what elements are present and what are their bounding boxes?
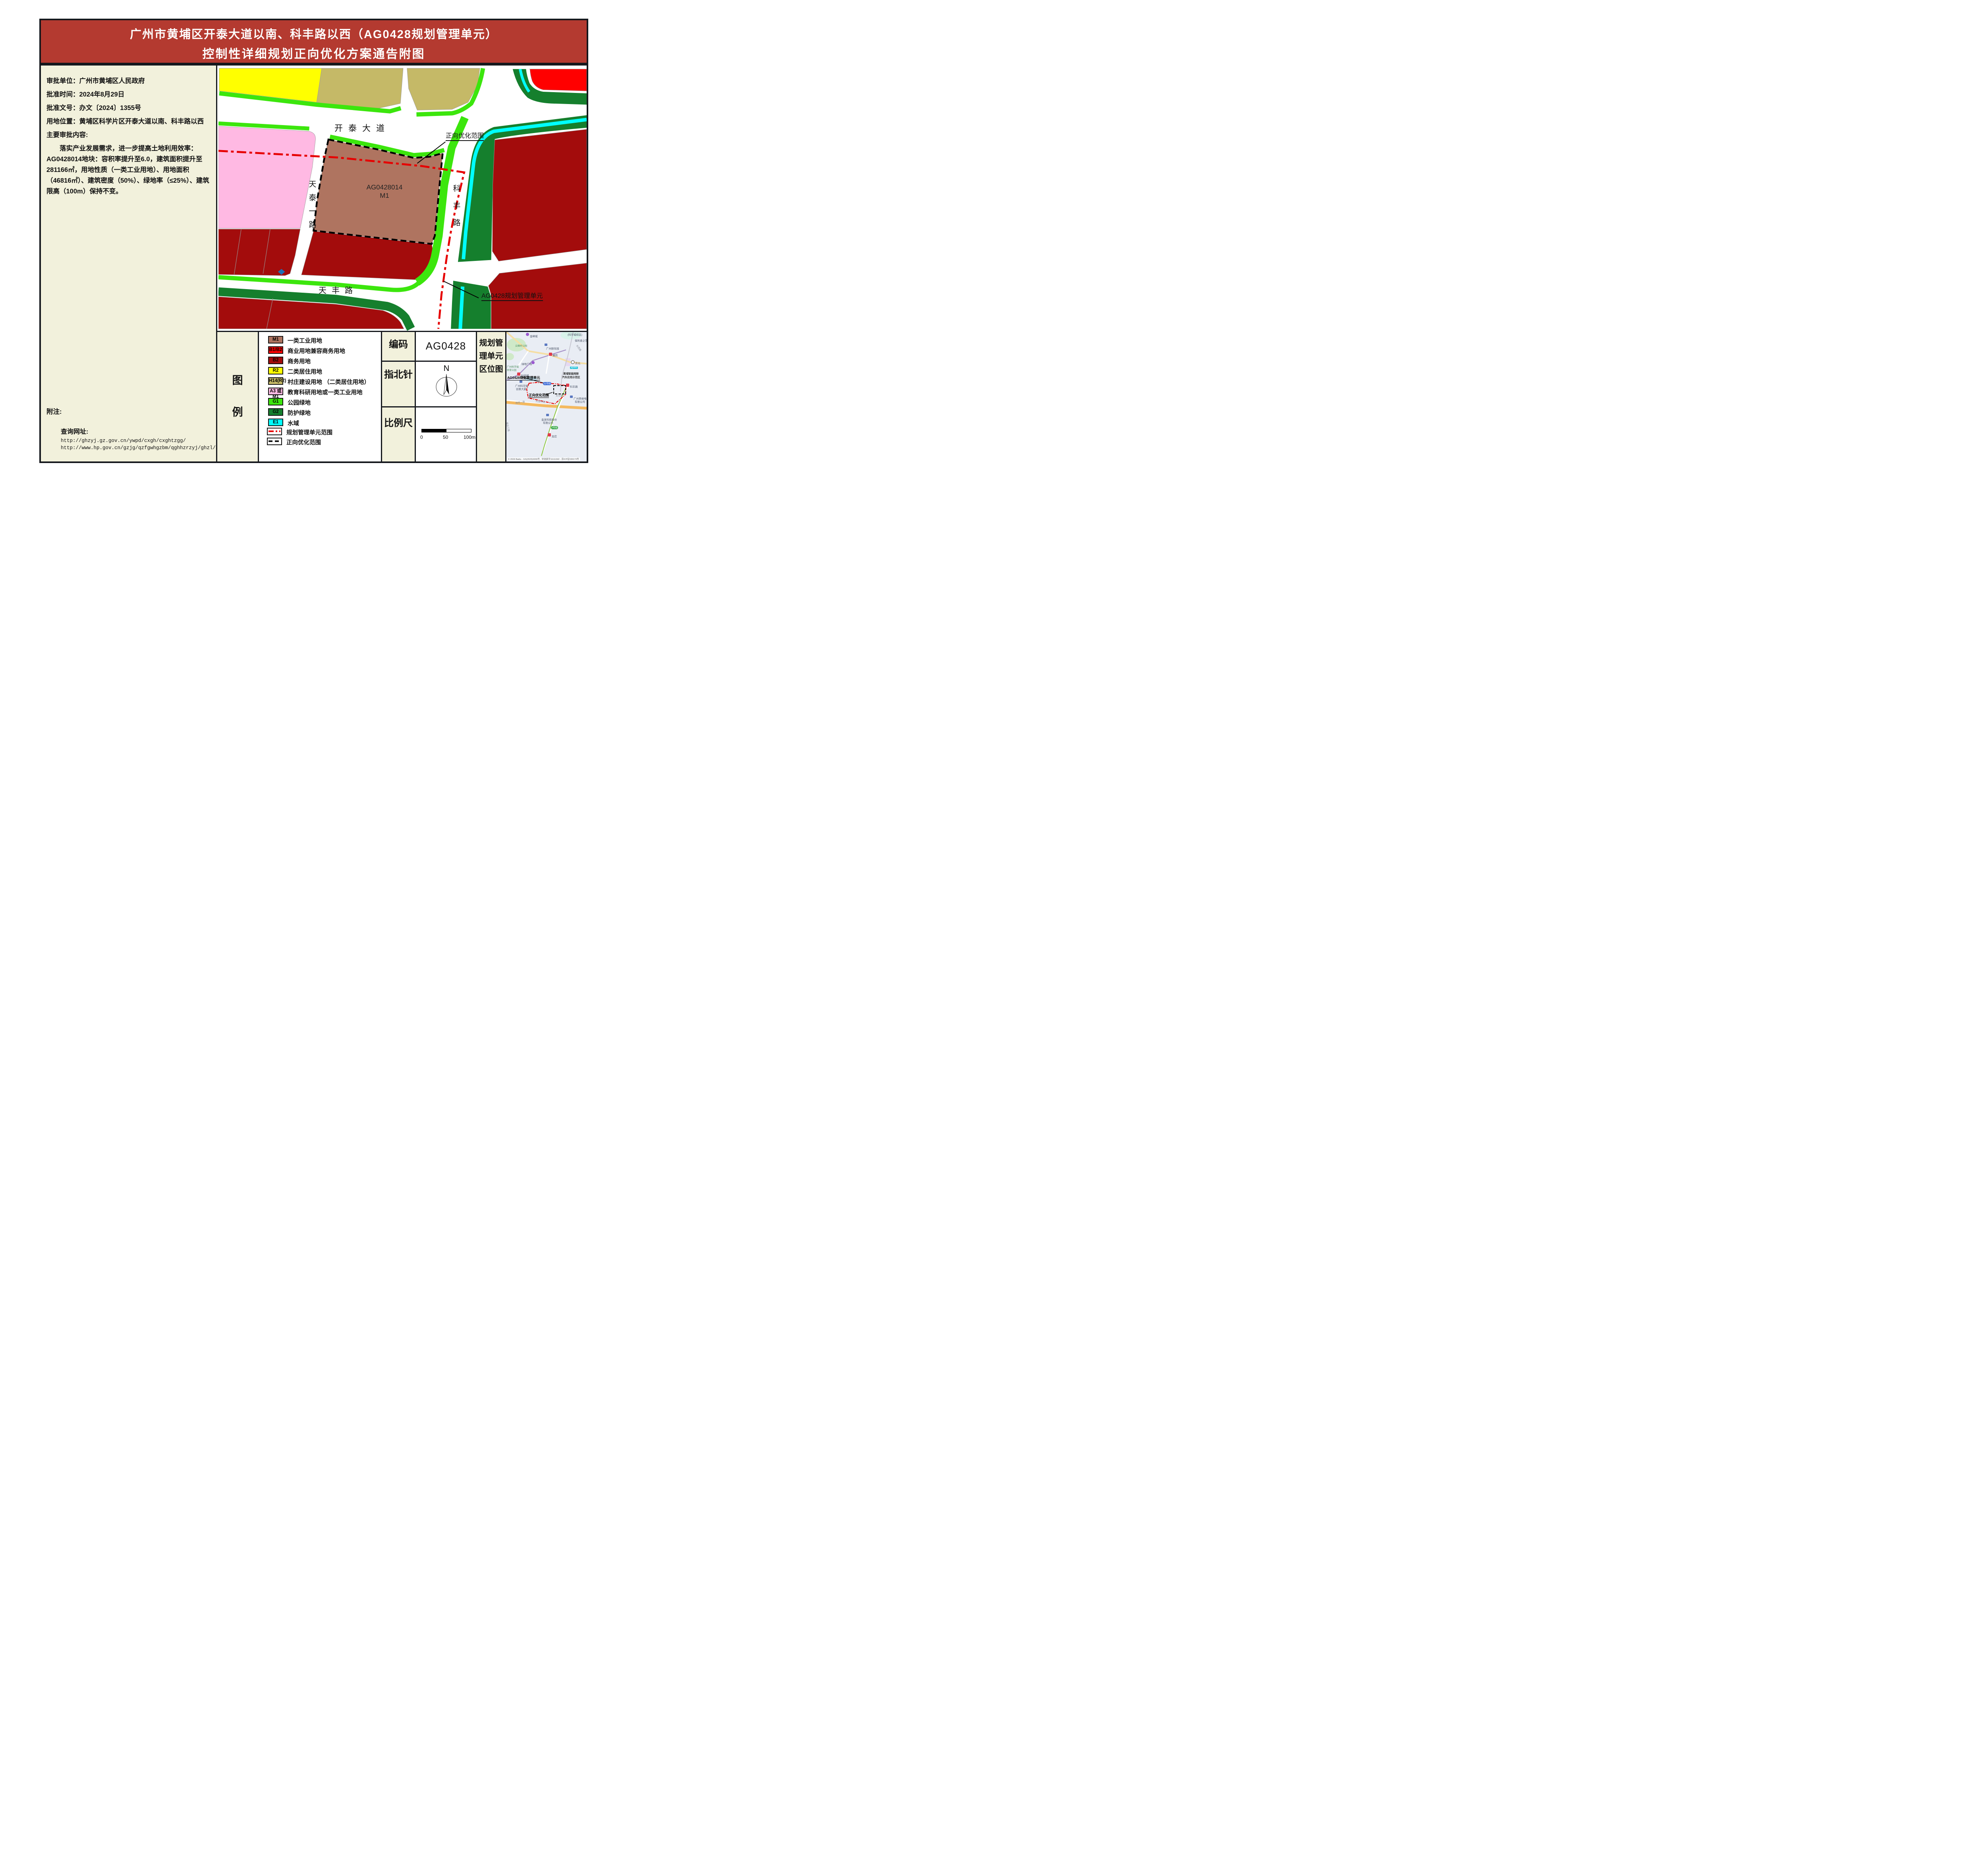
legend-lines: 规划管理单元范围 正向优化范围 <box>258 428 381 452</box>
scale-tick-50: 50 <box>443 434 448 440</box>
road-label-kefeng: 科丰路 <box>452 180 462 232</box>
minimap-label: 体育公园 <box>507 368 516 372</box>
panel-value-column: AG0428 N 0 50 100m <box>415 331 476 461</box>
legend-title-char-2: 例 <box>217 403 258 419</box>
land-location: 用地位置：黄埔区科学片区开泰大道以南、科丰路以西 <box>46 116 212 127</box>
legend-swatch: B1/B2 <box>268 346 283 354</box>
minimap-label: 科丰路 <box>570 384 578 388</box>
legend-item-label: 公园绿地 <box>288 398 311 407</box>
location-minimap: © 2024 Baidu - GS(2023)3206号 - 甲测资字11111… <box>505 331 587 461</box>
legend-item-label: 商务用地 <box>288 357 311 365</box>
approval-info-panel: 审批单位：广州市黄埔区人民政府 批准时间：2024年8月29日 批准文号：办文〔… <box>41 66 217 461</box>
code-label: 编码 <box>382 338 415 351</box>
minimap-copyright: © 2024 Baidu - GS(2023)3206号 - 甲测资字11111… <box>507 457 580 461</box>
location-map-title: 规划管理单元区位图 <box>477 337 505 376</box>
legend-title-cell: 图 例 <box>217 331 258 461</box>
legend-title-char-1: 图 <box>217 372 258 387</box>
notes-title: 附注: <box>46 406 213 416</box>
legend-item-label: 教育科研用地或一类工业用地 <box>288 388 363 396</box>
query-url-2: http://www.hp.gov.cn/gzjg/qzfgwhgzbm/qgh… <box>61 445 213 451</box>
approval-date: 批准时间：2024年8月29日 <box>46 89 212 100</box>
query-url-1: http://ghzyj.gz.gov.cn/ywpd/cxgh/cxghtzg… <box>61 438 213 444</box>
legend-swatch: M1 <box>268 336 283 344</box>
parcel-b2-northeast <box>493 129 587 261</box>
minimap-label: (科学城校区) <box>568 332 582 336</box>
scale-tick-100: 100m <box>464 434 475 440</box>
annotation-optimization-range: 正向优化范围 <box>446 130 484 141</box>
approval-content-heading: 主要审批内容: <box>46 130 212 141</box>
legend-swatch: A3 或 M1 <box>268 388 283 395</box>
legend-swatch: B2 <box>268 357 283 364</box>
road-label-kaitai-avenue: 开泰大道 <box>334 122 390 134</box>
approval-content-body: 落实产业发展需求，进一步提高土地利用效率： AG0428014地块：容积率提升至… <box>46 143 212 197</box>
compass-north-letter: N <box>444 364 449 373</box>
legend-line-label: 正向优化范围 <box>286 438 321 446</box>
e1-stripe-east-lower <box>460 287 463 329</box>
approval-info-text: 审批单位：广州市黄埔区人民政府 批准时间：2024年8月29日 批准文号：办文〔… <box>46 76 212 200</box>
minimap-label: apollo <box>570 367 578 369</box>
legend-item-label: 一类工业用地 <box>288 336 322 345</box>
minimap-label: 暹岗 <box>553 353 558 357</box>
legend-item-label: 村庄建设用地 （二类居住用地） <box>288 378 370 386</box>
minimap-label: 创意大厦 <box>516 387 526 391</box>
approval-doc-no: 批准文号：办文〔2024〕1355号 <box>46 103 212 114</box>
minimap-label: 保利香之雪 <box>575 338 587 342</box>
legend-item-label: 防护绿地 <box>288 409 311 417</box>
minimap-label: 正向优化范围 <box>529 393 549 398</box>
minimap-label: 苏元 <box>575 361 580 365</box>
drawing-frame: 广州市黄埔区开泰大道以南、科丰路以西（AG0428规划管理单元） 控制性详细规划… <box>39 19 588 463</box>
minimap-label: 金峰城 <box>530 334 538 338</box>
legend-item-label: 商业用地兼容商务用地 <box>288 347 345 355</box>
plan-notice-sheet: 广州市黄埔区开泰大道以南、科丰路以西（AG0428规划管理单元） 控制性详细规划… <box>0 0 626 469</box>
planning-map: 开泰大道 天泰一路 科丰路 天丰路 AG0428014 M1 正向优化范围 AG… <box>218 66 587 331</box>
minimap-label: 7号线 <box>551 426 558 429</box>
minimap-label: 有限公司 <box>543 421 553 425</box>
minimap-label: AG0428规划管理单元 <box>507 375 540 380</box>
title-line-1: 广州市黄埔区开泰大道以南、科丰路以西（AG0428规划管理单元） <box>41 25 587 42</box>
title-banner: 广州市黄埔区开泰大道以南、科丰路以西（AG0428规划管理单元） 控制性详细规划… <box>41 20 587 66</box>
scale-label: 比例尺 <box>382 417 415 429</box>
compass: N <box>416 361 477 406</box>
minimap-label: 尖峰岭公园 <box>515 344 527 347</box>
scale-tick-0: 0 <box>420 434 423 440</box>
legend-swatch: G2 <box>268 408 283 416</box>
parcel-b2-west <box>218 229 300 276</box>
compass-label: 指北针 <box>382 369 415 381</box>
scale-bar <box>421 429 471 432</box>
title-line-2: 控制性详细规划正向优化方案通告附图 <box>41 44 587 62</box>
unit-code-value: AG0428 <box>416 340 476 352</box>
notes-subtitle: 查询网址: <box>61 426 213 436</box>
parcel-label: AG0428014 M1 <box>358 183 411 200</box>
legend-swatch: E1 <box>268 419 283 426</box>
road-label-tiantai-1st: 天泰一路 <box>308 178 317 232</box>
parcel-h14-west <box>317 68 403 108</box>
annotation-planning-unit: AG0428规划管理单元 <box>481 290 543 301</box>
minimap-label: 有限公司 <box>575 400 585 403</box>
minimap-label: 广州颐年园 <box>546 346 559 350</box>
parcel-a3m1-pink <box>218 126 315 228</box>
legend-line-swatch <box>267 438 282 445</box>
legend-swatch: H14(R2) <box>268 377 283 385</box>
road-label-tianfeng: 天丰路 <box>319 284 358 295</box>
legend-item-label: 二类居住用地 <box>288 367 322 376</box>
legend-swatch: R2 <box>268 367 283 374</box>
legend-item-label: 水域 <box>288 419 299 427</box>
legend-swatch: G1 <box>268 398 283 405</box>
parcel-use: M1 <box>358 191 411 200</box>
minimap-label: 21号线 <box>543 382 551 385</box>
parcel-code: AG0428014 <box>358 183 411 191</box>
notes-block: 附注: 查询网址: http://ghzyj.gz.gov.cn/ywpd/cx… <box>46 406 213 451</box>
legend-line-swatch <box>267 428 282 435</box>
minimap-label: 加庄 <box>552 434 557 438</box>
minimap-label: 天丰路 <box>556 394 563 398</box>
approval-unit: 审批单位：广州市黄埔区人民政府 <box>46 76 212 87</box>
parcel-b1b2-red <box>529 69 587 91</box>
minimap-label: 汽车应用示范区 <box>562 375 580 379</box>
legend-line-label: 规划管理单元范围 <box>286 428 332 436</box>
minimap-label: 绿地广场 <box>522 362 532 366</box>
location-map-title-cell: 规划管理单元区位图 <box>476 331 505 461</box>
panel-label-column: 编码 指北针 比例尺 <box>381 331 415 461</box>
